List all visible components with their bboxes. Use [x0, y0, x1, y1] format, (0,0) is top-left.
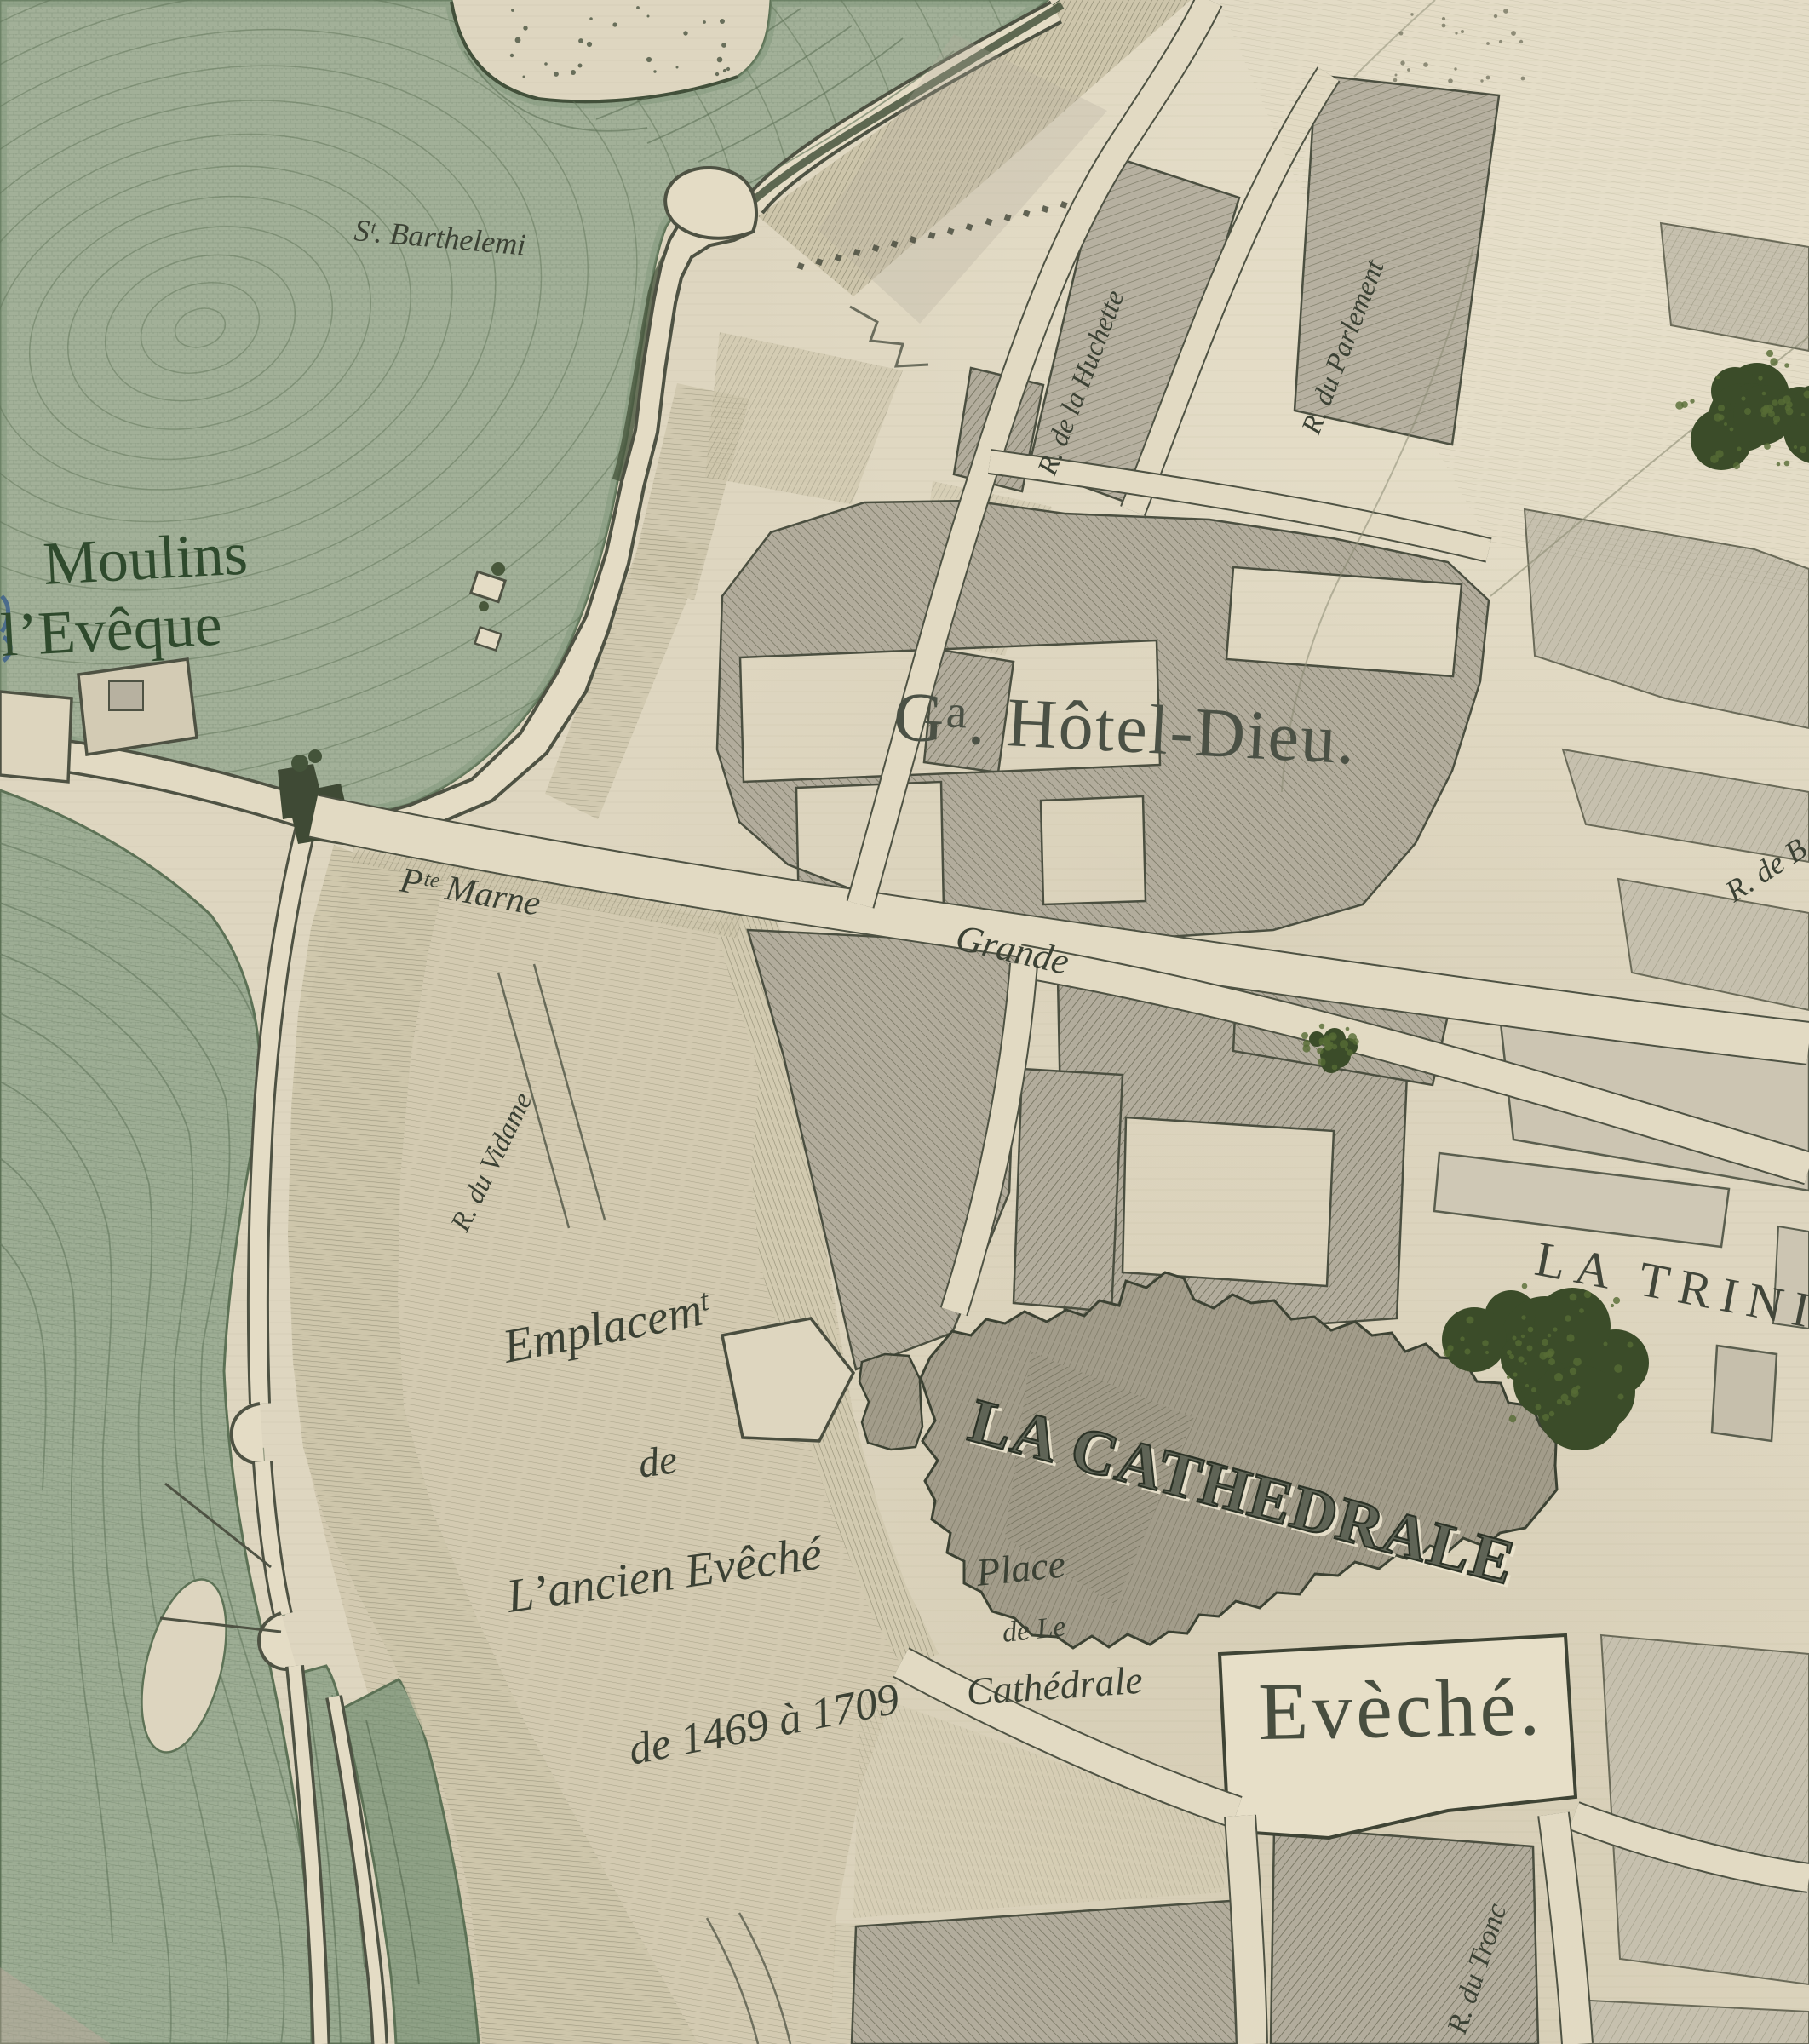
svg-text:de Le: de Le	[1001, 1611, 1067, 1649]
svg-text:l’Evêque: l’Evêque	[0, 589, 223, 669]
svg-text:Moulins: Moulins	[42, 520, 250, 598]
svg-text:de: de	[635, 1437, 680, 1487]
svg-text:Evèché.: Evèché.	[1257, 1661, 1543, 1757]
